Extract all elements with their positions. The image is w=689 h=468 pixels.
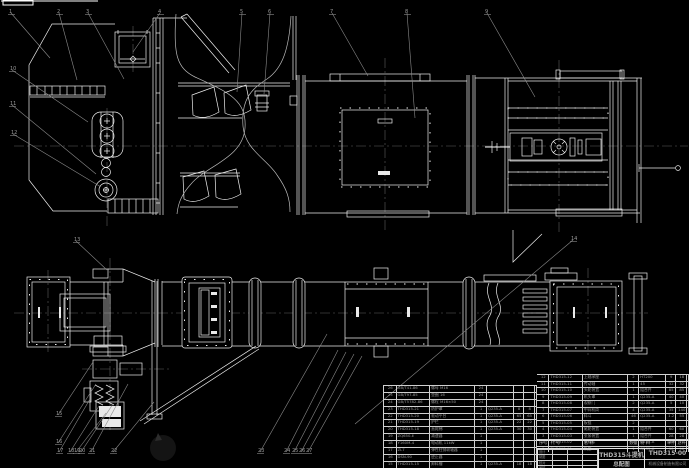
bom-code: THD315-04	[549, 427, 582, 433]
balloon-number: 20	[79, 448, 85, 454]
bom-unit-weight: 30	[514, 427, 525, 433]
bom-note: 外购	[535, 441, 536, 447]
title-block: 设计 制图 校对 审核	[537, 448, 689, 468]
bom-material: Q235-A	[639, 408, 666, 414]
leader-line	[76, 241, 107, 270]
bom-note	[687, 434, 688, 440]
leader-line	[58, 362, 93, 415]
bom-row: 12 THD315-12 上轴承座 2 HT200 9 18	[537, 374, 689, 381]
bom-seq: 21	[384, 420, 397, 426]
bom-total-weight: 18	[524, 462, 535, 468]
bom-unit-weight: 40	[666, 395, 677, 401]
balloon-number: 12	[11, 130, 17, 136]
balloon-number: 13	[74, 237, 80, 243]
bom-total-weight	[524, 448, 535, 454]
balloon-number: 2	[57, 9, 60, 15]
bom-seq: 17	[384, 448, 397, 454]
bom-unit-weight: 35	[666, 408, 677, 414]
bom-code: THD315-21	[397, 407, 431, 413]
balloon-number: 14	[571, 236, 577, 242]
bom-material: Q235-A	[487, 462, 514, 468]
balloon-number: 16	[56, 439, 62, 445]
plan-flange-ring-3	[463, 277, 475, 349]
bom-qty: 46	[628, 414, 640, 420]
bom-note: 外购	[535, 434, 536, 440]
bom-name: 护栏	[430, 420, 475, 426]
bom-row: 3 THD315-03 张紧装置 1 组合件 28 28	[537, 433, 689, 440]
bucket-lower-1	[183, 171, 209, 201]
bom-row: 19 ZQ650-Ⅱ 减速器 1 外购	[384, 433, 537, 440]
bom-note	[535, 407, 536, 413]
balloon-number: 15	[56, 411, 62, 417]
bom-material: 组合件	[639, 427, 666, 433]
bom-unit-weight: 8	[514, 407, 525, 413]
bom-unit-weight	[514, 448, 525, 454]
bom-code: Y160M-4	[397, 441, 431, 447]
bom-material	[487, 455, 514, 461]
drawing-number-cell: THD315-00 机械设备制造有限公司	[645, 449, 689, 468]
bom-name: 卸料槽	[430, 462, 475, 468]
crescent-watermark	[149, 433, 176, 461]
bom-total-weight: 28	[676, 434, 687, 440]
head-chain-sprockets	[92, 112, 123, 201]
leader-line	[260, 334, 327, 452]
bom-row: 10 THD315-10 头轮装置 1 组合件 85 85	[537, 387, 689, 394]
bom-material: Q235-A	[639, 414, 666, 420]
bom-row: 8 THD315-08 观察门 2 Q235-A 5 10	[537, 400, 689, 407]
balloon-number: 25	[292, 448, 298, 454]
bom-row: 24 GB/T5782-86 螺栓 M16×50 24	[384, 399, 537, 406]
bom-qty: 1	[475, 427, 487, 433]
bom-name: 直爬梯	[430, 427, 475, 433]
bom-row: 25 GB/T97-85 垫圈 16 24	[384, 392, 537, 399]
bucket-upper-1	[192, 87, 219, 117]
bom-total-weight: 60	[676, 427, 687, 433]
top-view-boot-section	[475, 70, 680, 262]
bom-note	[535, 400, 536, 406]
bom-material: 组合件	[639, 434, 666, 440]
leader-line	[59, 13, 77, 80]
balloon-number: 7	[330, 9, 333, 15]
bom-note: 外购	[687, 421, 688, 427]
bom-name: 传动轴	[583, 382, 628, 388]
bom-code: GB/T41-86	[397, 386, 431, 392]
bom-total-weight	[524, 400, 535, 406]
balloon-number: 6	[268, 9, 271, 15]
bom-unit-weight	[514, 455, 525, 461]
bom-qty: 2	[628, 401, 640, 407]
bom-qty: 1	[628, 434, 640, 440]
bom-qty: 1	[475, 420, 487, 426]
bom-code: DSN-90	[397, 455, 431, 461]
cad-drawing-sheet: 1234567891011121314151617181920212223242…	[0, 0, 689, 468]
bom-qty: 1	[628, 382, 640, 388]
bom-name: 头轮装置	[583, 388, 628, 394]
bom-name: 电动机 11kW	[430, 441, 475, 447]
bom-code: THD315-10	[549, 388, 582, 394]
bom-qty: 4	[628, 408, 640, 414]
leader-line	[487, 13, 535, 97]
bom-seq: 4	[537, 427, 549, 433]
bom-note	[687, 382, 688, 388]
bom-note	[535, 420, 536, 426]
bom-material: 组合件	[639, 388, 666, 394]
bom-row: 7 THD315-07 中间机筒 4 Q235-A 35 140	[537, 407, 689, 414]
bom-name: 板链	[583, 421, 628, 427]
bom-seq: 6	[537, 414, 549, 420]
bom-qty: 1	[628, 427, 640, 433]
leader-line	[286, 350, 338, 452]
bom-unit-weight: 22	[514, 420, 525, 426]
bom-note	[687, 395, 688, 401]
bom-qty: 1	[475, 455, 487, 461]
bom-name: 弹性柱销联轴器	[430, 448, 475, 454]
bom-unit-weight: 85	[666, 388, 677, 394]
bom-note: 外购	[535, 455, 536, 461]
bom-row: 26 GB/T41-86 螺母 M16 24	[384, 385, 537, 392]
bom-row: 23 THD315-21 防护罩 1 Q235-A 8 8	[384, 406, 537, 413]
bom-total-weight: 85	[676, 388, 687, 394]
bom-material	[487, 448, 514, 454]
bom-code: THD315-11	[549, 382, 582, 388]
leader-line	[11, 13, 50, 58]
bom-material: 45	[639, 382, 666, 388]
bom-note	[535, 414, 536, 420]
bom-unit-weight: 1.2	[666, 414, 677, 420]
balloon-number: 9	[485, 9, 488, 15]
sheet-title: 总配图	[599, 459, 644, 468]
balloon-number: 10	[10, 66, 16, 72]
bom-seq: 19	[384, 434, 397, 440]
bom-seq: 23	[384, 407, 397, 413]
drawing-number: THD315-00	[645, 449, 689, 460]
bom-unit-weight: 60	[666, 427, 677, 433]
bom-seq: 16	[384, 455, 397, 461]
bom-unit-weight: 9	[666, 375, 677, 381]
bom-seq: 11	[537, 382, 549, 388]
bom-unit-weight	[514, 400, 525, 406]
top-view-middle-casing	[290, 74, 475, 217]
bom-qty: 1	[475, 448, 487, 454]
bom-total-weight: 22	[524, 420, 535, 426]
bom-material	[487, 400, 514, 406]
plan-door-section	[182, 277, 232, 348]
bom-material: Q235-A	[487, 420, 514, 426]
bom-code: THD315-19	[397, 420, 431, 426]
bom-unit-weight: 32	[666, 382, 677, 388]
bom-row: 11 THD315-11 传动轴 1 45 32 32	[537, 381, 689, 388]
bom-total-weight: 55	[676, 414, 687, 420]
bom-qty: 1	[475, 407, 487, 413]
bom-unit-weight	[514, 393, 525, 399]
bom-material	[487, 393, 514, 399]
support-brace	[140, 346, 259, 424]
plan-flange-ring-2	[293, 278, 305, 348]
bom-row: 16 DSN-90 逆止器 1 外购	[384, 454, 537, 461]
bom-qty: 1	[628, 395, 640, 401]
balloon-number: 24	[284, 448, 290, 454]
bom-name: 观察门	[583, 401, 628, 407]
plan-flange-ring-1	[249, 278, 261, 348]
balloon-number: 4	[158, 9, 161, 15]
balloon-number: 21	[89, 448, 95, 454]
bom-seq: 9	[537, 395, 549, 401]
bom-seq: 18	[384, 441, 397, 447]
bom-row: 21 THD315-19 护栏 1 Q235-A 22 22	[384, 419, 537, 426]
bom-code: GB/T97-85	[397, 393, 431, 399]
bom-name: 逆止器	[430, 455, 475, 461]
bom-seq: 15	[384, 462, 397, 468]
bom-qty: 2	[628, 375, 640, 381]
bom-unit-weight: 5	[666, 401, 677, 407]
bom-note	[687, 408, 688, 414]
bom-total-weight: 18	[676, 375, 687, 381]
leader-line	[332, 13, 368, 76]
leader-line	[308, 356, 362, 452]
bom-seq: 22	[384, 414, 397, 420]
bom-seq: 24	[384, 400, 397, 406]
bom-name: 垫圈 16	[430, 393, 475, 399]
bom-unit-weight	[666, 421, 677, 427]
bom-total-weight	[524, 455, 535, 461]
bom-material	[487, 441, 514, 447]
bom-unit-weight: 65	[514, 414, 525, 420]
bom-material: Q235-A	[487, 407, 514, 413]
title-cell: THD315斗提机 总配图	[599, 449, 645, 468]
balloon-number: 8	[405, 9, 408, 15]
leader-line	[237, 13, 242, 92]
bom-qty: 1	[475, 414, 487, 420]
bom-code: THD315-05	[549, 421, 582, 427]
bom-name: 尾轮装置	[583, 427, 628, 433]
bom-material: Q235-A	[487, 427, 514, 433]
bom-table-left: 26 GB/T41-86 螺母 M16 24 25 GB/T97-85 垫圈 1…	[383, 385, 537, 468]
bom-note	[687, 414, 688, 420]
bom-name: 机头罩	[583, 395, 628, 401]
bom-material: Q235-A	[487, 414, 514, 420]
balloon-number: 1	[9, 9, 12, 15]
bom-row: 17 ZL7 弹性柱销联轴器 1 外购	[384, 447, 537, 454]
bom-note	[687, 375, 688, 381]
bom-note: 外购	[535, 448, 536, 454]
balloon-number: 11	[10, 101, 16, 107]
plan-boot-flange	[550, 273, 647, 354]
bom-total-weight: 10	[676, 401, 687, 407]
boot-takeup-mechanism	[485, 133, 680, 172]
bom-material: Q235-A	[639, 401, 666, 407]
balloon-number: 3	[86, 9, 89, 15]
bom-code: THD315-09	[549, 395, 582, 401]
bom-name: 张紧装置	[583, 434, 628, 440]
plan-bolted-panel	[345, 268, 428, 357]
bom-row: 4 THD315-04 尾轮装置 1 组合件 60 60	[537, 426, 689, 433]
leader-line	[301, 354, 354, 452]
bom-name: 上轴承座	[583, 375, 628, 381]
bom-code: THD315-06	[549, 414, 582, 420]
plan-inlet-chute	[484, 268, 577, 345]
leader-line	[294, 352, 346, 452]
bom-note	[687, 401, 688, 407]
bom-seq: 8	[537, 401, 549, 407]
bom-qty: 1	[628, 388, 640, 394]
balloon-number: 27	[306, 448, 312, 454]
bucket-lower-2	[215, 169, 241, 199]
bom-code: ZL7	[397, 448, 431, 454]
bom-material	[487, 434, 514, 440]
centerlines	[14, 26, 688, 430]
bom-total-weight: 8	[524, 407, 535, 413]
bom-seq: 26	[384, 386, 397, 392]
bom-total-weight: 32	[676, 382, 687, 388]
plan-view-head-box	[60, 269, 162, 356]
bom-seq: 10	[537, 388, 549, 394]
bucket-upper-2	[224, 85, 251, 115]
top-view-head-section	[29, 18, 163, 215]
bom-name: 中间机筒	[583, 408, 628, 414]
bom-note	[535, 393, 536, 399]
bom-row: 15 THD315-15 卸料槽 1 Q235-A 18 18	[384, 461, 537, 468]
balloon-number: 23	[258, 448, 264, 454]
bom-seq: 20	[384, 427, 397, 433]
motor-block	[96, 402, 124, 429]
bom-row: 18 Y160M-4 电动机 11kW 1 外购	[384, 440, 537, 447]
bom-name: 料斗	[583, 414, 628, 420]
bom-total-weight: 65	[524, 414, 535, 420]
bom-code: THD315-18	[397, 427, 431, 433]
sheet-frame-corner	[1, 0, 98, 5]
bom-note	[687, 388, 688, 394]
bom-code: THD315-07	[549, 408, 582, 414]
bom-qty: 24	[475, 400, 487, 406]
bom-unit-weight: 28	[666, 434, 677, 440]
bom-qty: 24	[475, 386, 487, 392]
bom-row: 22 THD315-20 驱动平台 1 Q235-A 65 65	[384, 413, 537, 420]
bom-total-weight	[524, 434, 535, 440]
product-title: THD315斗提机	[599, 450, 644, 459]
bom-code: THD315-20	[397, 414, 431, 420]
bom-note	[535, 427, 536, 433]
bom-note	[535, 386, 536, 392]
bom-material	[639, 421, 666, 427]
bom-row: 20 THD315-18 直爬梯 1 Q235-A 30 30	[384, 426, 537, 433]
balloon-number: 5	[240, 9, 243, 15]
bom-row: 6 THD315-06 料斗 46 Q235-A 1.2 55	[537, 413, 689, 420]
bom-row: 5 THD315-05 板链 2 外购	[537, 420, 689, 427]
balloon-number: 22	[111, 448, 117, 454]
bom-unit-weight: 18	[514, 462, 525, 468]
bom-code: THD315-08	[549, 401, 582, 407]
bom-seq: 12	[537, 375, 549, 381]
bom-total-weight	[524, 386, 535, 392]
bom-material	[487, 386, 514, 392]
bom-name: 减速器	[430, 434, 475, 440]
plan-view-head-flange	[27, 277, 70, 347]
bom-qty: 2	[628, 421, 640, 427]
bom-code: THD315-03	[549, 434, 582, 440]
boot-discharge-stub	[513, 230, 542, 262]
top-view-bucket-cutaway	[153, 14, 296, 214]
balloon-number: 17	[57, 448, 63, 454]
bom-code: THD315-15	[397, 462, 431, 468]
bom-row: 9 THD315-09 机头罩 1 Q235-A 40 40	[537, 394, 689, 401]
leader-line	[12, 105, 96, 174]
bom-qty: 24	[475, 393, 487, 399]
bom-note	[687, 427, 688, 433]
bom-material: Q235-A	[639, 395, 666, 401]
balloon-number: 26	[299, 448, 305, 454]
company-name: 机械设备制造有限公司	[645, 460, 689, 468]
leader-line	[264, 13, 270, 94]
bom-unit-weight	[514, 434, 525, 440]
leader-line	[91, 384, 128, 452]
signature-grid: 设计 制图 校对 审核	[538, 449, 599, 468]
bom-total-weight	[524, 393, 535, 399]
bom-total-weight	[524, 441, 535, 447]
leader-line	[407, 13, 415, 118]
bom-code: ZQ650-Ⅱ	[397, 434, 431, 440]
bom-total-weight	[676, 421, 687, 427]
bom-material: HT200	[639, 375, 666, 381]
leader-line	[88, 13, 124, 79]
plan-view-casing	[162, 268, 647, 357]
bom-unit-weight	[514, 441, 525, 447]
bom-seq: 7	[537, 408, 549, 414]
bom-seq: 5	[537, 421, 549, 427]
bom-name: 螺栓 M16×50	[430, 400, 475, 406]
bom-note	[535, 462, 536, 468]
bom-qty: 1	[475, 441, 487, 447]
bom-qty: 1	[475, 434, 487, 440]
bom-total-weight: 30	[524, 427, 535, 433]
bom-unit-weight	[514, 386, 525, 392]
bom-total-weight: 140	[676, 408, 687, 414]
leader-line	[58, 384, 96, 443]
bom-name: 防护罩	[430, 407, 475, 413]
bom-name: 螺母 M16	[430, 386, 475, 392]
bom-name: 驱动平台	[430, 414, 475, 420]
bom-code: GB/T5782-86	[397, 400, 431, 406]
bom-seq: 25	[384, 393, 397, 399]
bucket-bolt-detail	[255, 91, 269, 111]
bom-seq: 3	[537, 434, 549, 440]
bom-code: THD315-12	[549, 375, 582, 381]
bom-qty: 1	[475, 462, 487, 468]
bom-total-weight: 40	[676, 395, 687, 401]
